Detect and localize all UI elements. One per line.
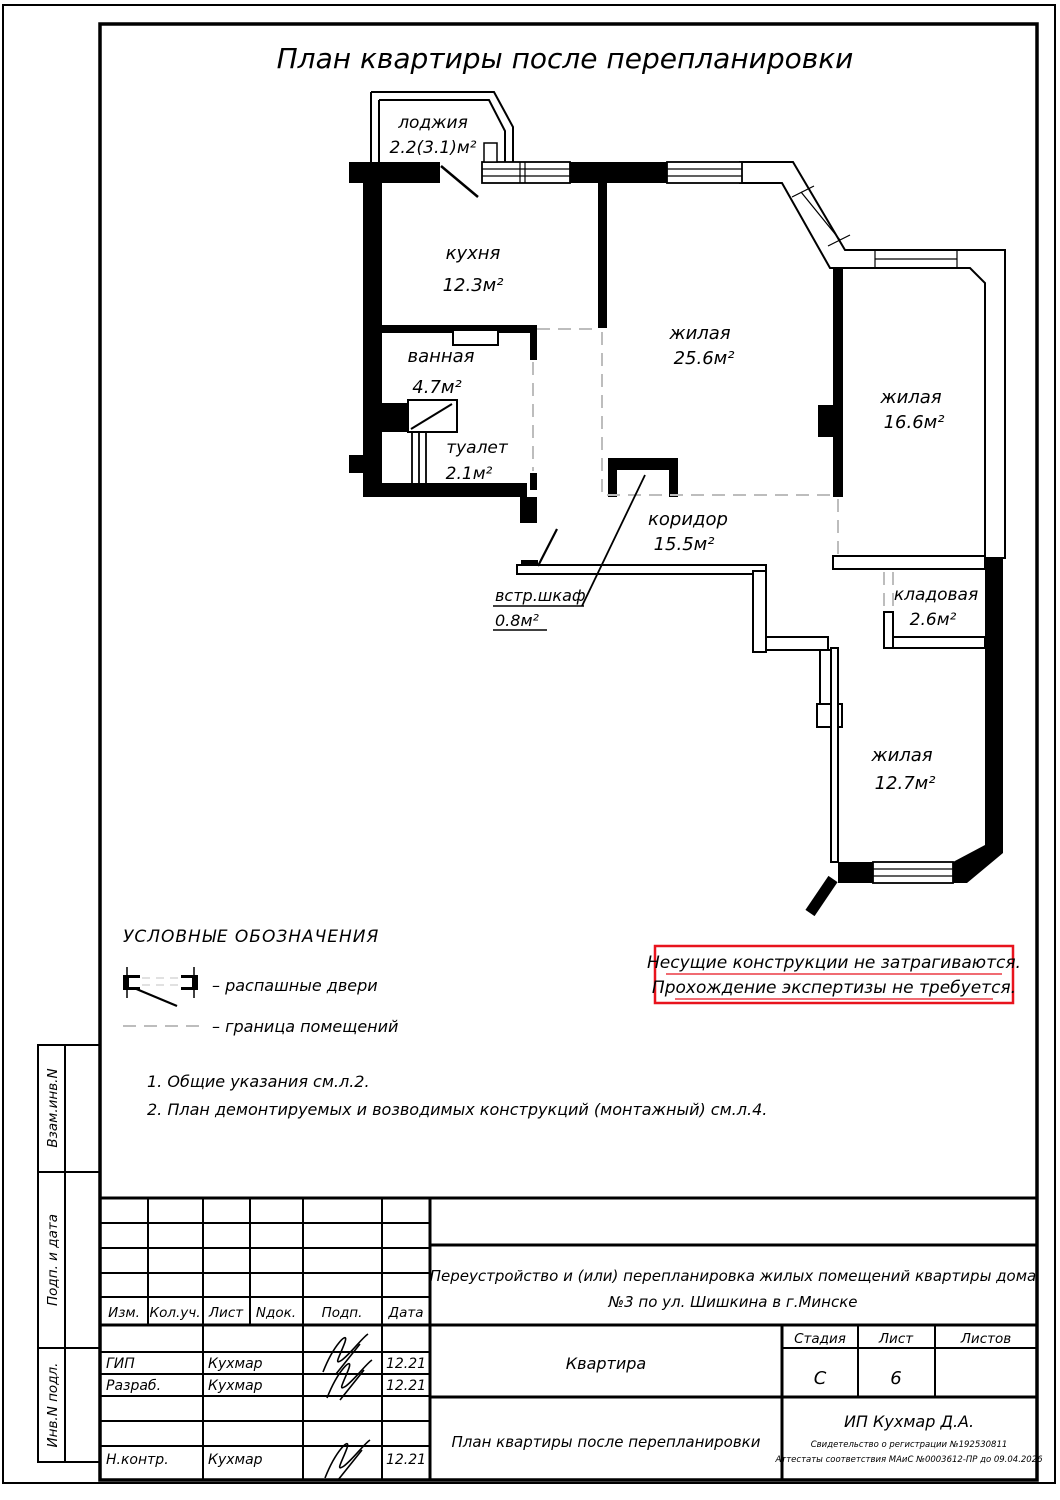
room-area-living2: 16.6м² (884, 412, 945, 433)
page-title: План квартиры после перепланировки (277, 42, 854, 75)
floor-plan: лоджия 2.2(3.1)м² кухня 12.3м² ванная 4.… (349, 92, 1005, 913)
legend-swing-doors-label: – распашные двери (212, 976, 378, 995)
room-area-bathroom: 4.7м² (412, 377, 461, 398)
warning-line1: Несущие конструкции не затрагиваются. (647, 953, 1021, 973)
legend-title: УСЛОВНЫЕ ОБОЗНАЧЕНИЯ (123, 927, 379, 947)
col-list: Лист (208, 1305, 244, 1321)
room-area-toilet: 2.1м² (446, 464, 493, 484)
company-name: ИП Кухмар Д.А. (844, 1412, 974, 1431)
room-labels: лоджия 2.2(3.1)м² кухня 12.3м² ванная 4.… (390, 113, 979, 794)
room-label-living2: жилая (879, 387, 941, 408)
sidebar-cell-inv: Инв.N подл. (45, 1363, 61, 1448)
col-data: Дата (388, 1305, 424, 1321)
row-nkontr-date: 12.21 (386, 1452, 426, 1468)
closet-leader-line (493, 475, 645, 630)
room-area-living3: 12.7м² (875, 773, 936, 794)
col-koluch: Кол.уч. (149, 1305, 200, 1321)
company-cert2: Аттестаты соответствия МАиС №0003612-ПР … (774, 1455, 1043, 1465)
row-razrab-date: 12.21 (386, 1378, 426, 1394)
sheet-title: План квартиры после перепланировки (452, 1433, 761, 1451)
stage-label: Стадия (794, 1331, 846, 1347)
doc-title-line1: Переустройство и (или) перепланировка жи… (430, 1267, 1036, 1285)
note-1: 1. Общие указания см.л.2. (147, 1072, 370, 1091)
room-label-bathroom: ванная (407, 346, 474, 367)
company-cert1: Свидетельство о регистрации №192530811 (811, 1440, 1008, 1450)
row-nkontr-role: Н.контр. (106, 1452, 169, 1468)
row-gip-role: ГИП (106, 1356, 135, 1372)
col-izm: Изм. (108, 1305, 140, 1321)
sheet-frame (3, 5, 1055, 1483)
title-block: Изм. Кол.уч. Лист Nдок. Подп. Дата ГИП К… (100, 1198, 1043, 1480)
room-label-living3: жилая (870, 745, 932, 766)
row-gip-name: Кухмар (208, 1356, 263, 1372)
title-block-rows: ГИП Кухмар 12.21 Разраб. Кухмар 12.21 Н.… (106, 1356, 426, 1468)
drawing-sheet: План квартиры после перепланировки (0, 0, 1060, 1500)
room-area-storage: 2.6м² (910, 610, 957, 630)
title-block-main-texts: Переустройство и (или) перепланировка жи… (430, 1267, 1043, 1465)
title-block-headers: Изм. Кол.уч. Лист Nдок. Подп. Дата (108, 1305, 423, 1321)
room-label-closet: встр.шкаф (495, 586, 586, 605)
row-nkontr-name: Кухмар (208, 1452, 263, 1468)
signature-gip (323, 1334, 368, 1374)
warning-note: Несущие конструкции не затрагиваются. Пр… (647, 946, 1021, 1003)
room-area-kitchen: 12.3м² (443, 275, 504, 296)
row-razrab-name: Кухмар (208, 1378, 263, 1394)
swing-door-symbol (123, 967, 198, 1006)
sheets-label: Листов (960, 1331, 1011, 1347)
doc-title-line2: №3 по ул. Шишкина в г.Минске (607, 1293, 857, 1311)
room-area-living1: 25.6м² (674, 348, 735, 369)
room-label-storage: кладовая (894, 585, 978, 605)
floor-plan-drawing: План квартиры после перепланировки (0, 0, 1060, 1500)
note-2: 2. План демонтируемых и возводимых конст… (147, 1100, 767, 1119)
sidebar-cell-vzam: Взам.инв.N (45, 1068, 61, 1147)
sidebar: Взам.инв.N Подп. и дата Инв.N подл. (38, 1045, 100, 1462)
row-gip-date: 12.21 (386, 1356, 426, 1372)
room-label-kitchen: кухня (446, 243, 501, 264)
room-label-corridor: коридор (648, 509, 728, 530)
sheet-value: 6 (890, 1368, 901, 1389)
col-ndok: Nдок. (256, 1305, 296, 1321)
row-razrab-role: Разраб. (106, 1378, 161, 1394)
sidebar-cell-podp: Подп. и дата (45, 1214, 61, 1306)
stage-value: С (814, 1368, 827, 1389)
room-label-loggia: лоджия (397, 113, 468, 133)
room-area-loggia: 2.2(3.1)м² (390, 138, 477, 158)
object-name: Квартира (566, 1354, 646, 1373)
room-area-closet: 0.8м² (495, 611, 540, 630)
warning-line2: Прохождение экспертизы не требуется. (652, 978, 1016, 998)
room-label-toilet: туалет (446, 438, 509, 458)
col-podp: Подп. (322, 1305, 363, 1321)
legend-room-border-label: – граница помещений (212, 1017, 398, 1036)
sheet-label: Лист (878, 1331, 914, 1347)
signatures (323, 1334, 372, 1480)
signature-razrab (327, 1360, 372, 1400)
room-area-corridor: 15.5м² (654, 534, 715, 555)
room-label-living1: жилая (668, 323, 730, 344)
